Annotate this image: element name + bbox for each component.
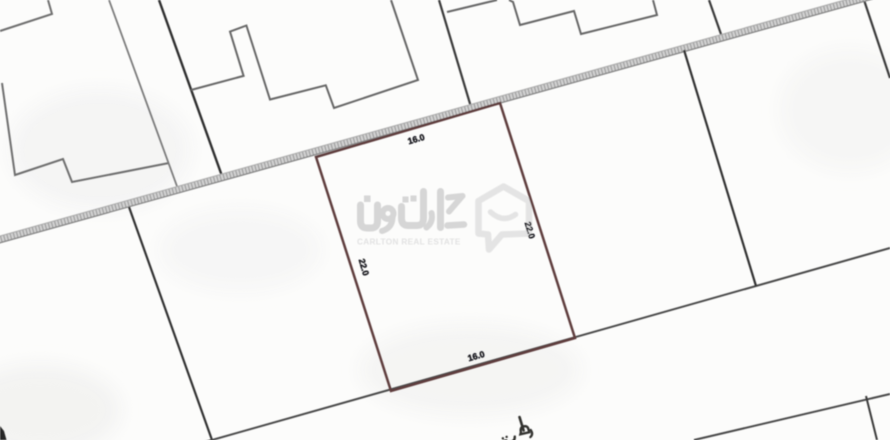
svg-text:CARLTON REAL ESTATE: CARLTON REAL ESTATE [357,238,461,247]
